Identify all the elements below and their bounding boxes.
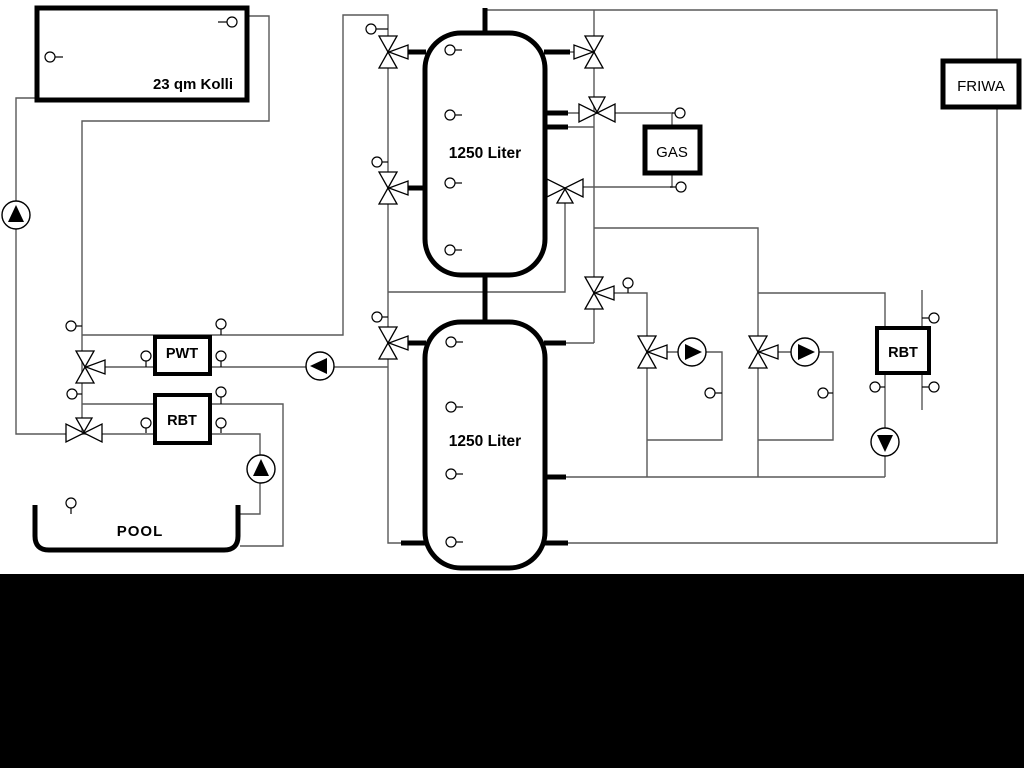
three-way-valve-icon [749,336,778,368]
temperature-sensor-icon [216,319,226,335]
three-way-valve-icon [638,336,667,368]
temperature-sensor-icon [623,278,633,293]
temperature-sensor-icon [141,418,151,433]
temperature-sensor-icon [216,418,226,433]
pipe-rbt-right-supply [758,293,885,477]
three-way-valve-icon [379,327,408,359]
temperature-sensor-icon [672,108,685,118]
hydraulic-schematic: 23 qm Kolli 1250 Liter 1250 Liter GAS FR… [0,0,1024,768]
three-way-valve-icon [66,418,102,442]
rbt-left-label: RBT [167,413,197,429]
three-way-valve-icon [76,351,105,383]
temperature-sensor-icon [372,312,388,322]
temperature-sensor-icon [705,388,722,398]
temperature-sensor-icon [216,351,226,367]
three-way-valve-icon [379,172,408,204]
pump-icon [2,201,30,229]
temperature-sensor-icon [366,24,388,34]
temperature-sensor-icon [66,321,82,331]
footer-band [0,574,1024,768]
temperature-sensor-icon [372,157,388,167]
temperature-sensor-icon [818,388,833,398]
pwt-label: PWT [166,346,198,362]
three-way-valve-icon [574,36,603,68]
tank-bottom-label: 1250 Liter [449,433,521,450]
gas-boiler-label: GAS [656,144,688,161]
pipe-branch1-riser [613,293,647,477]
pool-label: POOL [117,523,164,540]
temperature-sensor-icon [141,351,151,367]
three-way-valve-icon [579,97,615,122]
temperature-sensor-icon [216,387,226,404]
temperature-sensor-icon [922,313,939,323]
pump-icon [247,455,275,483]
pump-icon [306,352,334,380]
temperature-sensor-icon [922,382,939,392]
three-way-valve-icon [547,179,583,203]
pump-icon [678,338,706,366]
temperature-sensor-icon [67,389,82,399]
temperature-sensor-icon [870,382,885,392]
pump-icon [871,428,899,456]
friwa-label: FRIWA [957,78,1005,95]
three-way-valve-icon [585,277,614,309]
pipe-friwa-loop [487,10,997,543]
three-way-valve-icon [379,36,408,68]
schematic-canvas: 23 qm Kolli 1250 Liter 1250 Liter GAS FR… [0,0,1024,768]
pipe-collector-supply [16,98,260,514]
temperature-sensor-icon [66,498,76,514]
rbt-right-label: RBT [888,345,918,361]
pump-icon [791,338,819,366]
collector-label: 23 qm Kolli [153,76,233,93]
tank-top-label: 1250 Liter [449,145,521,162]
